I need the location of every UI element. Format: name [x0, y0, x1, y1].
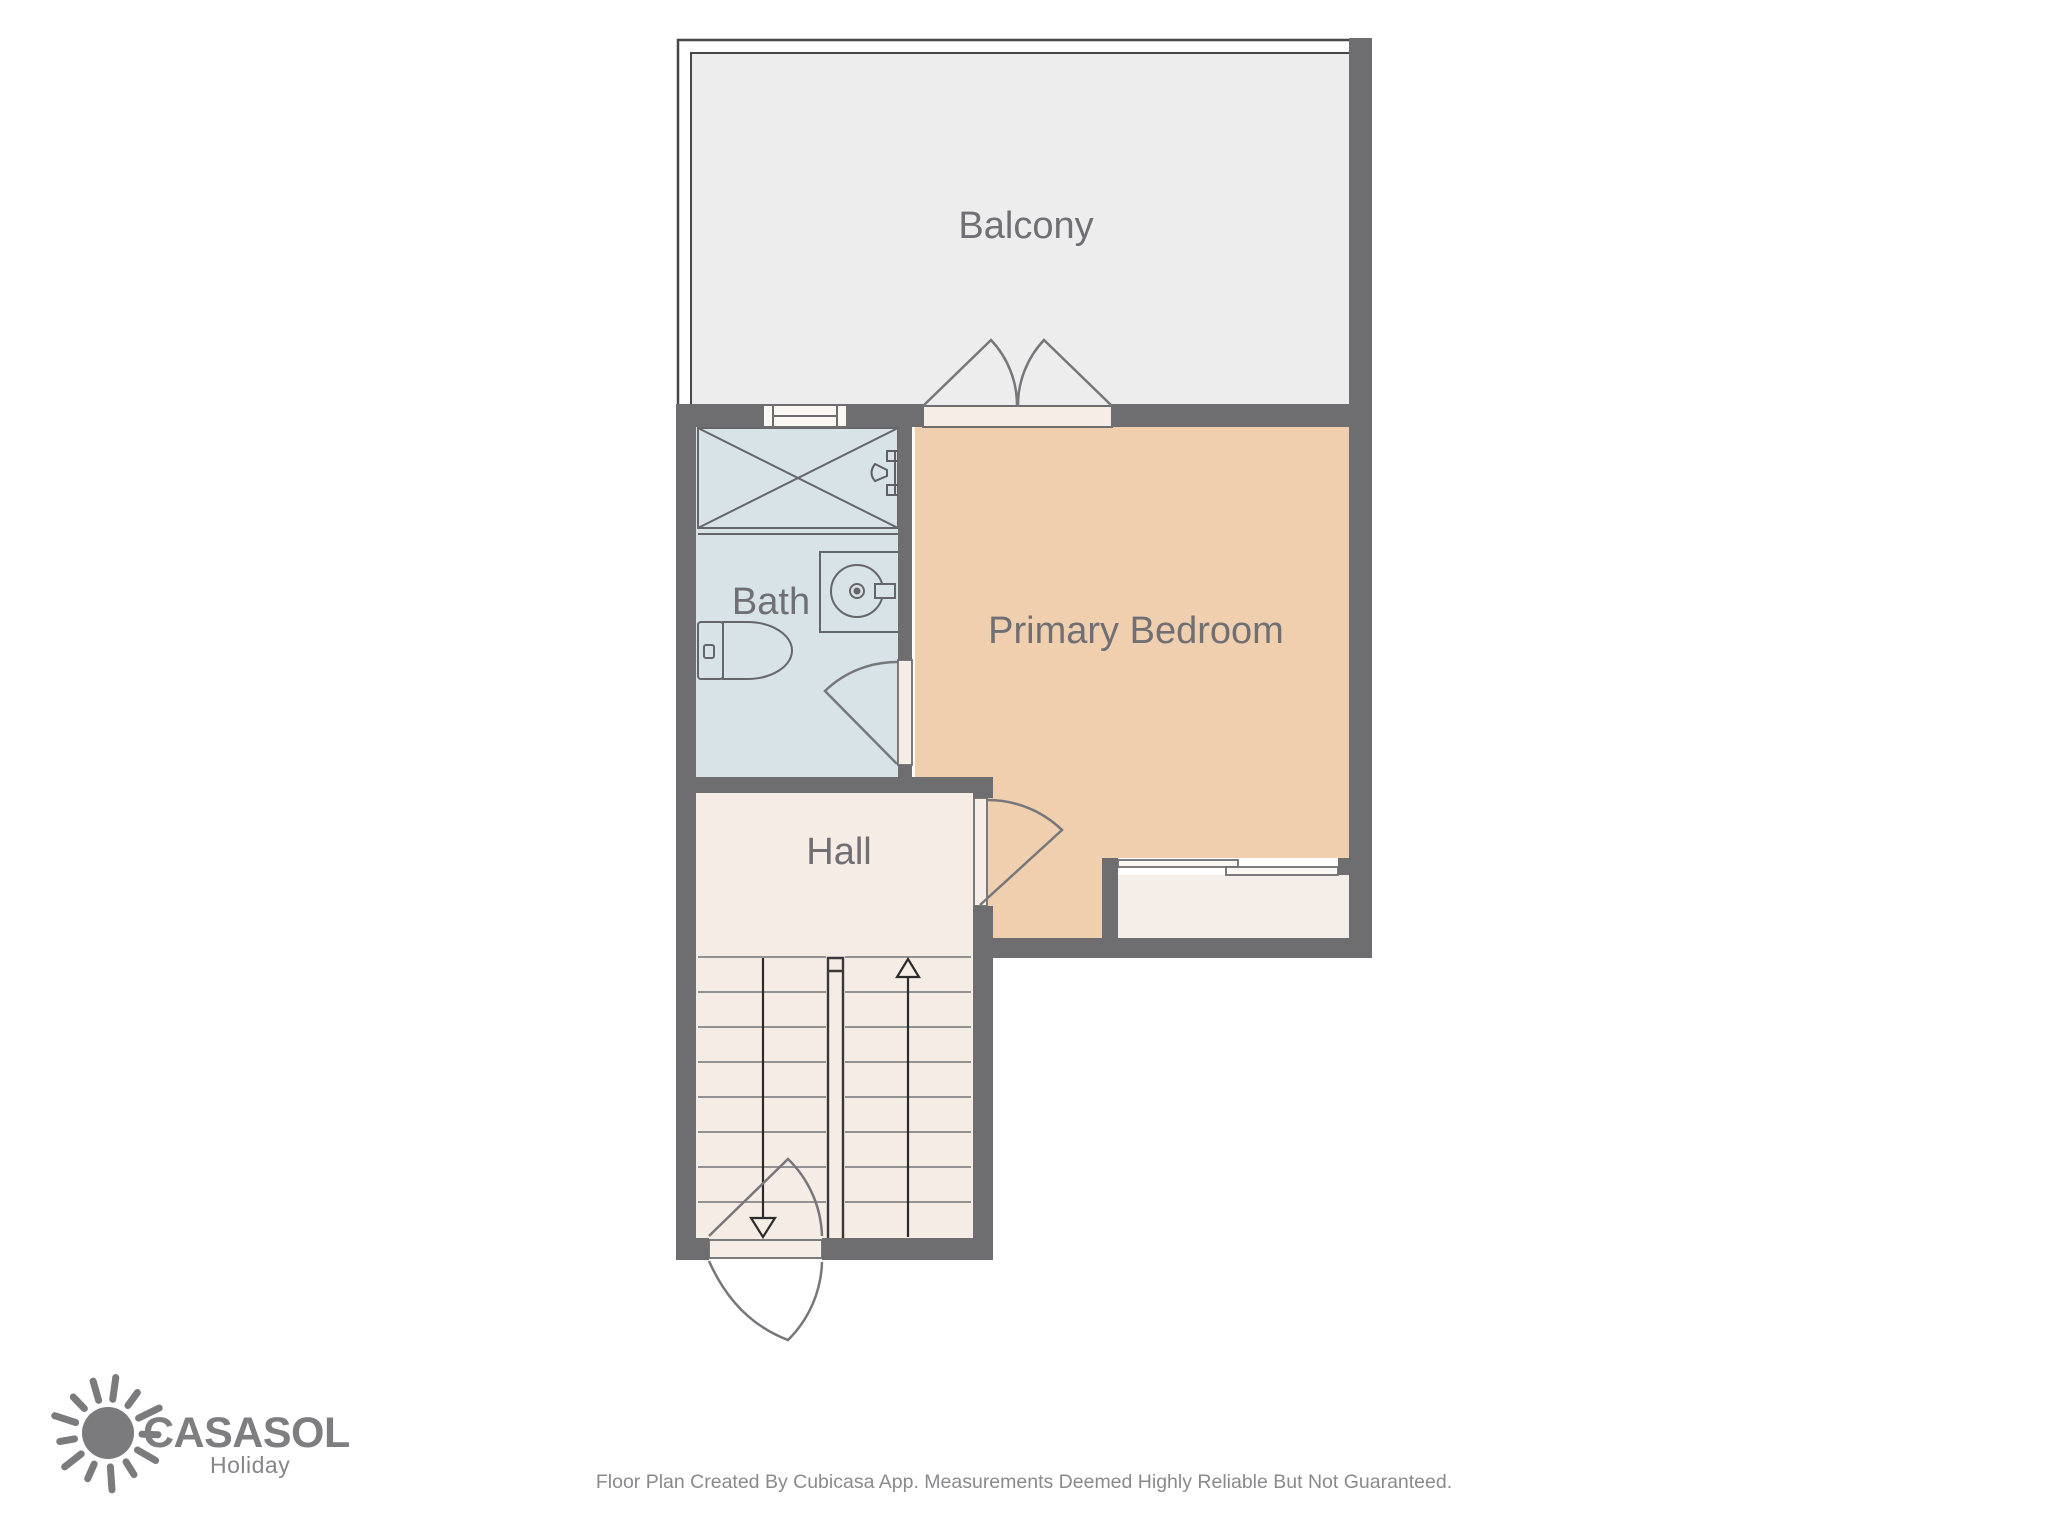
- wall-stairs-bottom-right: [822, 1238, 993, 1260]
- wall-bath-hall: [696, 777, 973, 793]
- window: [763, 405, 847, 427]
- wall-bath-door-stub: [898, 765, 912, 779]
- wall-stairs-right: [973, 906, 993, 1260]
- floor-plan: Balcony Bath Hall Primary Bedroom: [0, 0, 2048, 1536]
- wall-top-left: [676, 404, 763, 427]
- wall-hall-bedroom-top: [973, 777, 993, 798]
- wall-right: [1349, 38, 1372, 958]
- wall-stairs-bottom-left: [676, 1238, 709, 1260]
- label-balcony: Balcony: [958, 205, 1093, 247]
- window-recess-floor: [1115, 875, 1350, 938]
- wall-bedroom-bottom: [993, 938, 1372, 958]
- sliding-window: [1118, 860, 1338, 875]
- wall-recess-stub: [1338, 858, 1350, 875]
- wall-left: [676, 406, 696, 1260]
- brand-name: CASASOL: [143, 1409, 350, 1458]
- label-primary-bedroom: Primary Bedroom: [988, 610, 1284, 652]
- footer-disclaimer: Floor Plan Created By Cubicasa App. Meas…: [0, 1471, 2048, 1494]
- wall-top-mid: [847, 404, 923, 427]
- label-bath: Bath: [732, 581, 810, 623]
- label-hall: Hall: [806, 831, 871, 873]
- wall-top-right: [1112, 404, 1372, 427]
- wall-recess-jamb: [1102, 858, 1118, 938]
- wall-bath-bedroom: [898, 426, 912, 662]
